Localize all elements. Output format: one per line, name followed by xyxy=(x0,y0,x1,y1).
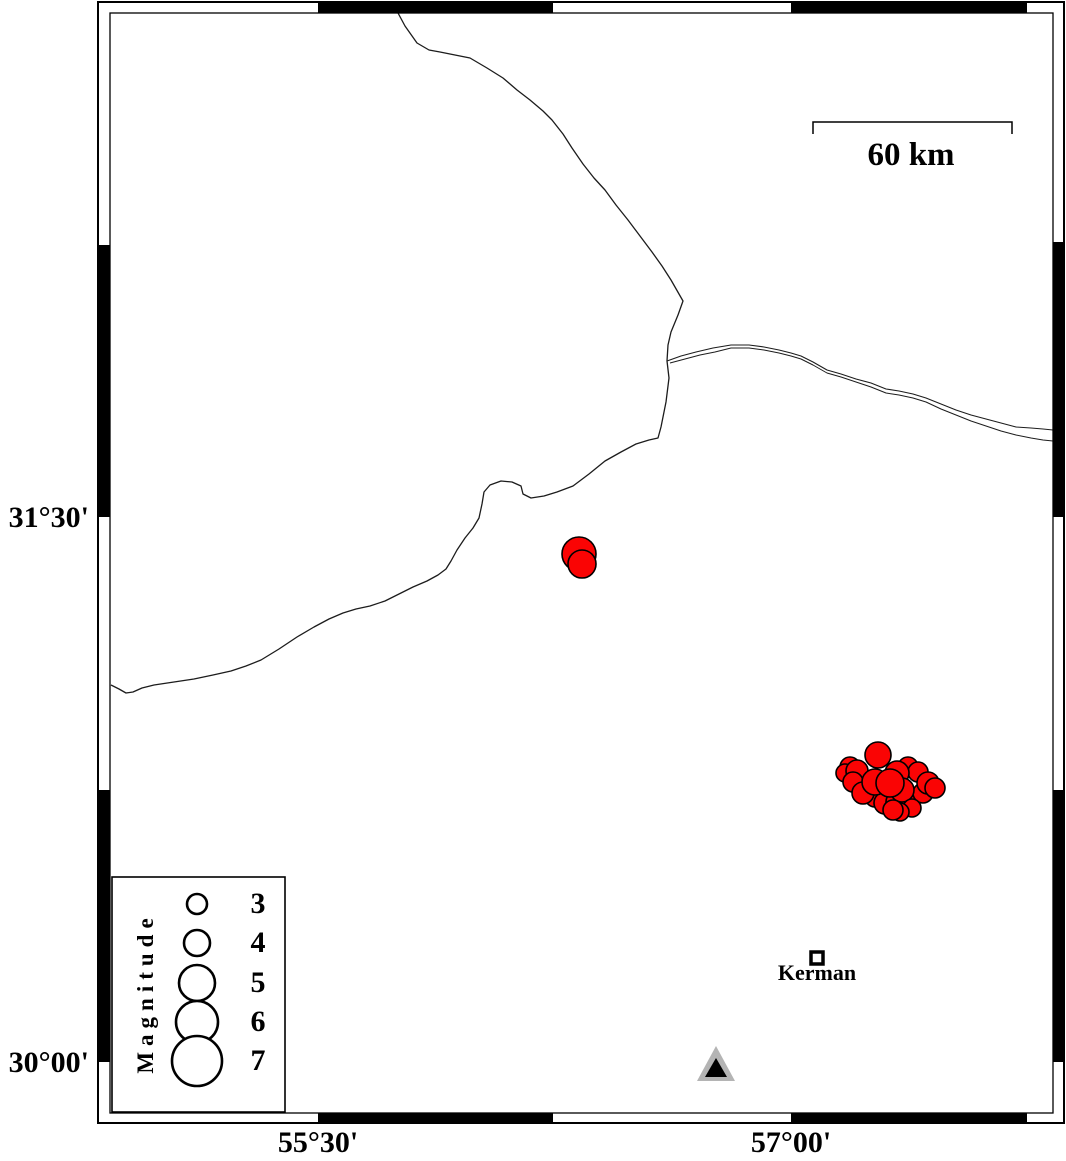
legend-circle xyxy=(172,1036,222,1086)
earthquake-point xyxy=(865,742,891,768)
frame-black-segment xyxy=(791,2,1027,13)
seismicity-map-figure: 60 km Kerman Magnitude 31°30'30°00'55°30… xyxy=(0,0,1066,1161)
scale-bar-bracket xyxy=(813,122,1012,134)
frame-black-segment xyxy=(98,245,110,517)
earthquake-point xyxy=(925,778,945,798)
city-label: Kerman xyxy=(737,961,897,985)
legend-circle xyxy=(179,965,215,1001)
earthquake-point xyxy=(876,769,904,797)
latitude-tick-label: 31°30' xyxy=(0,502,89,533)
fault-main xyxy=(111,13,683,693)
legend-circle xyxy=(187,894,207,914)
earthquake-point xyxy=(568,550,596,578)
frame-black-segment xyxy=(318,2,553,13)
legend-magnitude-value: 3 xyxy=(218,887,298,921)
frame-black-segment xyxy=(1053,790,1064,1062)
earthquake-epicenters xyxy=(562,537,945,821)
legend-title: Magnitude xyxy=(134,912,158,1073)
latitude-tick-label: 30°00' xyxy=(0,1047,89,1078)
scale-bar xyxy=(813,122,1012,134)
legend-magnitude-value: 4 xyxy=(218,926,298,960)
fault-branch-a xyxy=(667,345,1053,430)
earthquake-point xyxy=(883,800,903,820)
fault-lines xyxy=(111,13,1053,693)
station-triangle-icon xyxy=(697,1046,735,1081)
fault-branch-b xyxy=(670,348,1053,441)
legend-magnitude-value: 7 xyxy=(218,1044,298,1078)
frame-black-segment xyxy=(1053,242,1064,517)
legend-magnitude-value: 5 xyxy=(218,966,298,1000)
legend-circle xyxy=(184,930,210,956)
longitude-tick-label: 55°30' xyxy=(238,1127,398,1158)
map-canvas xyxy=(0,0,1066,1161)
longitude-tick-label: 57°00' xyxy=(711,1127,871,1158)
frame-black-segment xyxy=(791,1113,1027,1123)
legend-magnitude-value: 6 xyxy=(218,1005,298,1039)
scale-bar-label: 60 km xyxy=(831,138,991,172)
frame-black-segment xyxy=(98,790,110,1062)
frame-black-segment xyxy=(318,1113,553,1123)
